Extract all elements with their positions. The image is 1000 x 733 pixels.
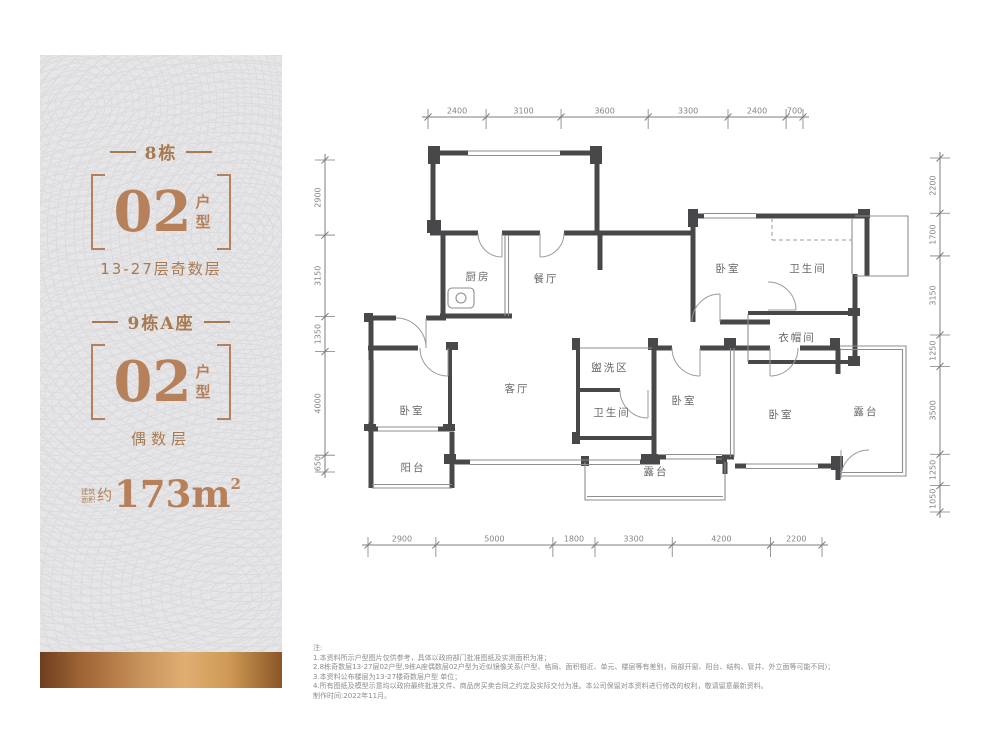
room-label: 阳台 xyxy=(401,461,426,474)
area-prefix: 建筑 面积 xyxy=(81,488,95,504)
bracket-left xyxy=(91,174,106,250)
dim-value: 3500 xyxy=(929,400,938,420)
dim-value: 3300 xyxy=(678,107,698,116)
dim-value: 2200 xyxy=(786,535,806,544)
dim-value: 1050 xyxy=(929,489,938,509)
dash-line xyxy=(110,151,136,153)
copper-gradient-bar xyxy=(40,652,282,688)
dimension-line-bottom: 290050001800330042002200 xyxy=(362,535,828,558)
dimension-line-right: 2200170031501250350012501050 xyxy=(929,152,951,518)
area-approx: 约 xyxy=(97,484,112,505)
notes-line: 2.8栋奇数层13-27层02户型,9栋A座偶数层02户型为近似镜像关系(户型、… xyxy=(313,663,989,673)
building-name: 8栋 xyxy=(145,139,178,164)
area-prefix-line: 建筑 xyxy=(81,488,95,496)
dim-value: 3150 xyxy=(929,285,938,305)
dimension-line-top: 24003100360033002400700 xyxy=(422,107,809,130)
bracket-right xyxy=(216,174,231,250)
building-row-1: 8栋 xyxy=(110,139,213,164)
room-label: 露台 xyxy=(644,465,669,478)
dash-line xyxy=(204,321,230,323)
dash-line xyxy=(92,321,118,323)
dim-value: 2900 xyxy=(392,535,412,544)
building-name: 9栋A座 xyxy=(127,309,194,334)
area-row: 建筑 面积 约 173m 2 xyxy=(81,475,241,511)
dim-value: 1250 xyxy=(929,341,938,361)
dim-value: 2400 xyxy=(447,107,467,116)
building-row-2: 9栋A座 xyxy=(92,309,229,334)
dim-value: 650 xyxy=(314,456,323,471)
dim-value: 1700 xyxy=(929,224,938,244)
unit-type-1: 02 户 型 xyxy=(91,174,232,250)
dim-value: 2200 xyxy=(929,175,938,195)
dimension-line-left: 2900315013504000650 xyxy=(314,154,336,478)
notes-line: 制作时间:2022年11月。 xyxy=(313,692,989,702)
area-value: 173m xyxy=(114,477,230,511)
room-labels: 厨房餐厅卧室卫生间衣帽间卧室客厅盥洗区卫生间卧室卧室露台阳台露台 xyxy=(400,262,879,478)
dim-value: 1800 xyxy=(564,535,584,544)
room-label: 卫生间 xyxy=(593,406,631,419)
room-label: 卧室 xyxy=(769,408,794,421)
unit-word-char: 户 xyxy=(195,194,210,210)
room-label: 卫生间 xyxy=(789,262,827,275)
room-label: 露台 xyxy=(854,405,879,418)
floors-label-2: 偶数层 xyxy=(131,428,191,449)
floor-plan-svg: 2400310036003300240070029005000180033004… xyxy=(300,70,1000,600)
dim-value: 700 xyxy=(787,107,802,116)
dim-value: 3100 xyxy=(513,107,533,116)
room-label: 客厅 xyxy=(505,382,530,395)
dashed-bulkhead-lines xyxy=(772,218,852,240)
unit-type-2: 02 户 型 xyxy=(91,344,232,420)
room-label: 衣帽间 xyxy=(778,331,816,344)
unit-word: 户 型 xyxy=(195,194,210,230)
unit-word-char: 户 xyxy=(195,364,210,380)
floors-label-1: 13-27层奇数层 xyxy=(100,258,222,279)
notes-line: 4.所有图纸及模型示意均以政府最终批准文件、商品房买卖合同之约定及实际交付为准。… xyxy=(313,682,989,692)
dim-value: 3300 xyxy=(623,535,643,544)
disclaimer-notes: 注: 1.本资料所示户型图片仅供参考，具体以政府部门批准图纸及实测面积为准； 2… xyxy=(313,644,989,701)
dim-value: 1250 xyxy=(929,460,938,480)
dim-value: 3150 xyxy=(314,266,323,286)
dim-value: 1350 xyxy=(314,324,323,344)
info-panel-content: 8栋 02 户 型 13-27层奇数层 9栋A座 02 户 型 xyxy=(40,55,282,688)
unit-number: 02 xyxy=(114,177,192,247)
room-label: 餐厅 xyxy=(534,272,559,285)
dim-value: 5000 xyxy=(484,535,504,544)
unit-word: 户 型 xyxy=(195,364,210,400)
room-label: 厨房 xyxy=(466,270,491,283)
room-label: 盥洗区 xyxy=(591,362,629,374)
wall-piers xyxy=(364,146,870,470)
unit-word-char: 型 xyxy=(195,214,210,230)
unit-word-char: 型 xyxy=(195,384,210,400)
notes-title: 注: xyxy=(313,644,989,654)
dash-line xyxy=(186,151,212,153)
bracket-left xyxy=(91,344,106,420)
dim-value: 2900 xyxy=(314,187,323,207)
dim-value: 4000 xyxy=(314,393,323,413)
room-label: 卧室 xyxy=(716,262,741,275)
dim-value: 4200 xyxy=(711,535,731,544)
dim-value: 2400 xyxy=(747,107,767,116)
notes-line: 3.本资料公布楼层为13-27楼奇数层户型 单位； xyxy=(313,673,989,683)
unit-number: 02 xyxy=(114,347,192,417)
area-prefix-line: 面积 xyxy=(81,496,95,504)
room-label: 卧室 xyxy=(672,394,697,407)
floor-plan: 2400310036003300240070029005000180033004… xyxy=(300,70,1000,600)
area-superscript: 2 xyxy=(230,475,240,493)
bracket-right xyxy=(216,344,231,420)
info-panel: 8栋 02 户 型 13-27层奇数层 9栋A座 02 户 型 xyxy=(40,55,282,688)
dim-value: 3600 xyxy=(594,107,614,116)
notes-line: 1.本资料所示户型图片仅供参考，具体以政府部门批准图纸及实测面积为准； xyxy=(313,654,989,664)
room-label: 卧室 xyxy=(400,404,425,417)
